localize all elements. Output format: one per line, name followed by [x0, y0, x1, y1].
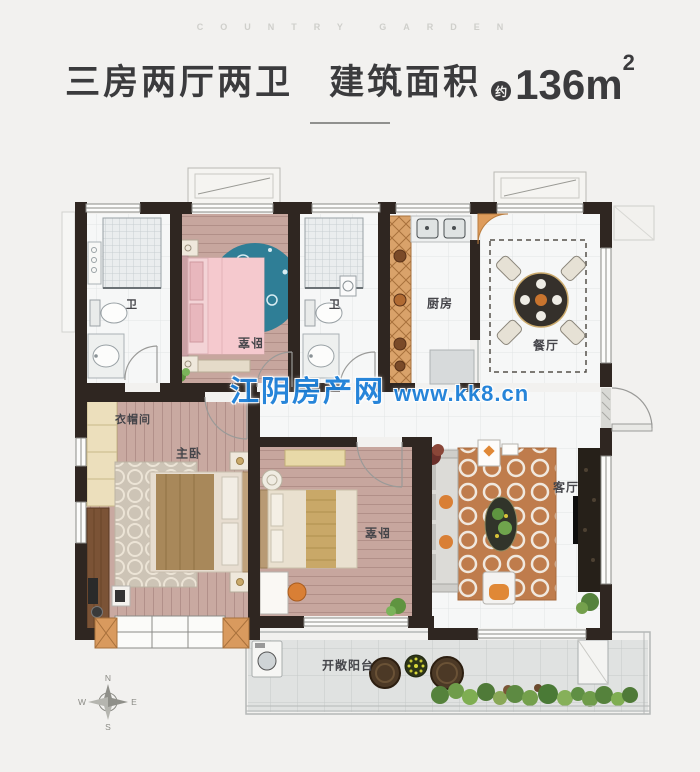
room-label-bath-left: 卫 — [126, 296, 138, 312]
room-label-master: 主卧 — [176, 445, 202, 462]
compass: N E S W — [78, 673, 137, 732]
room-label-living: 客厅 — [553, 479, 579, 496]
room-label-cloakroom: 衣帽间 — [115, 411, 151, 427]
room-label-bath-right: 卫 — [329, 296, 341, 312]
watermark-site-name: 江阴房产网 — [230, 368, 385, 410]
page-background: COUNTRY GARDEN 三房两厅两卫 建筑面积 约 136m 2 — [0, 0, 700, 772]
compass-east: E — [131, 697, 137, 707]
watermark: 江阴房产网 www.kk8.cn — [230, 368, 529, 410]
master-bay-window — [95, 616, 249, 648]
room-label-balcony: 开敞阳台 — [322, 657, 374, 674]
tv-feature-wall — [578, 448, 602, 592]
compass-south: S — [105, 722, 111, 732]
room-label-dining: 餐厅 — [533, 337, 559, 354]
watermark-site-url: www.kk8.cn — [394, 381, 529, 407]
room-label-bedroom-second: 卧室 — [364, 525, 390, 542]
entry-door — [601, 388, 652, 431]
room-label-kitchen: 厨房 — [427, 295, 453, 312]
compass-west: W — [78, 697, 86, 707]
room-label-bedroom-top: 卧室 — [237, 335, 263, 352]
compass-north: N — [105, 673, 111, 683]
